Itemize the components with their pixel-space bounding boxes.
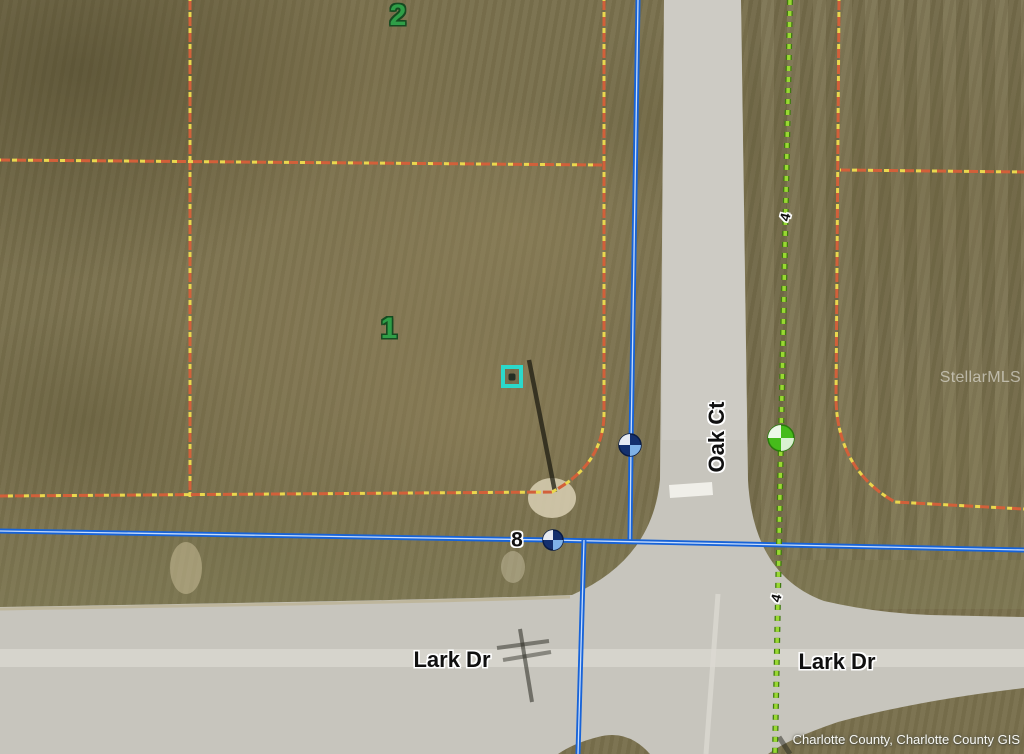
oak-ct-street-label: Oak Ct xyxy=(706,402,728,473)
parcel-boundary-lot1 xyxy=(0,0,604,496)
oak-ct-light-pavement xyxy=(662,0,747,440)
parcel-boundary-right-block xyxy=(836,0,1024,509)
map-attribution: Charlotte County, Charlotte County GIS xyxy=(793,732,1020,747)
sand-patch xyxy=(170,542,202,594)
map-canvas[interactable]: 2 1 8 Oak Ct Lark Dr Lark Dr 4 4 Stellar… xyxy=(0,0,1024,754)
parcel-boundary-horizontal-top xyxy=(0,160,604,165)
pole-shadow xyxy=(529,360,555,492)
lot-8-label: 8 xyxy=(511,530,523,551)
parcel-1-label: 1 xyxy=(381,314,398,344)
lark-dr-street-label-west: Lark Dr xyxy=(413,649,490,671)
street-node-marker[interactable] xyxy=(543,530,563,550)
street-node-marker[interactable] xyxy=(619,434,641,456)
parcel-boundaries xyxy=(0,0,1024,509)
sand-patch xyxy=(501,551,525,583)
property-marker[interactable] xyxy=(501,365,523,388)
property-marker-dot xyxy=(509,373,516,380)
parcel-boundary-right-horizontal xyxy=(840,170,1024,172)
parcel-2-label: 2 xyxy=(390,1,407,31)
utility-node-marker[interactable] xyxy=(768,425,794,451)
stellar-mls-watermark: StellarMLS xyxy=(940,369,1021,387)
lark-dr-street-label-east: Lark Dr xyxy=(798,651,875,673)
